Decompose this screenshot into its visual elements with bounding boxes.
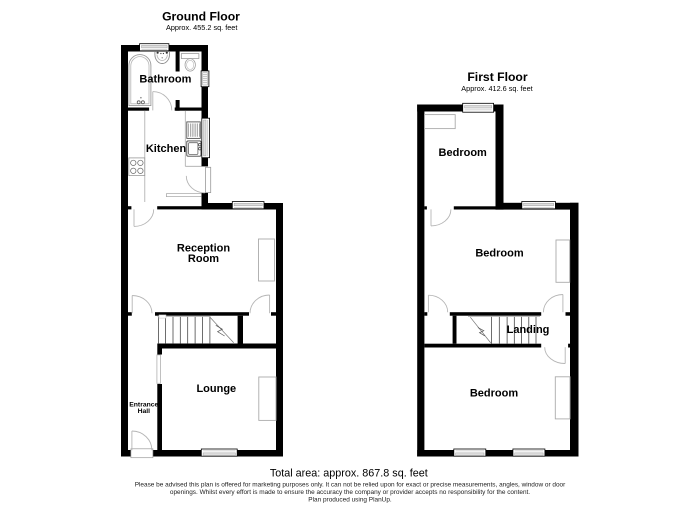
svg-text:Room: Room [188, 253, 219, 265]
svg-text:Lounge: Lounge [196, 383, 236, 395]
svg-text:Hall: Hall [138, 408, 151, 415]
svg-text:Plan produced using PlanUp.: Plan produced using PlanUp. [308, 497, 392, 504]
svg-text:Total area: approx. 867.8 sq.: Total area: approx. 867.8 sq. feet [270, 467, 428, 479]
svg-text:First Floor: First Floor [467, 70, 528, 84]
svg-text:Ground Floor: Ground Floor [162, 10, 240, 24]
svg-text:Approx. 412.6 sq. feet: Approx. 412.6 sq. feet [461, 84, 532, 93]
svg-text:openings. Whilst every effort: openings. Whilst every effort is made to… [170, 489, 530, 496]
svg-text:Bedroom: Bedroom [439, 147, 488, 159]
svg-text:Please be advised this plan is: Please be advised this plan is offered f… [135, 482, 566, 489]
svg-text:Bedroom: Bedroom [475, 248, 524, 260]
svg-text:Bedroom: Bedroom [470, 387, 519, 399]
svg-text:Kitchen: Kitchen [146, 143, 187, 155]
svg-text:Bathroom: Bathroom [139, 73, 191, 85]
svg-text:Approx. 455.2 sq. feet: Approx. 455.2 sq. feet [166, 23, 237, 32]
svg-text:Landing: Landing [507, 324, 550, 336]
